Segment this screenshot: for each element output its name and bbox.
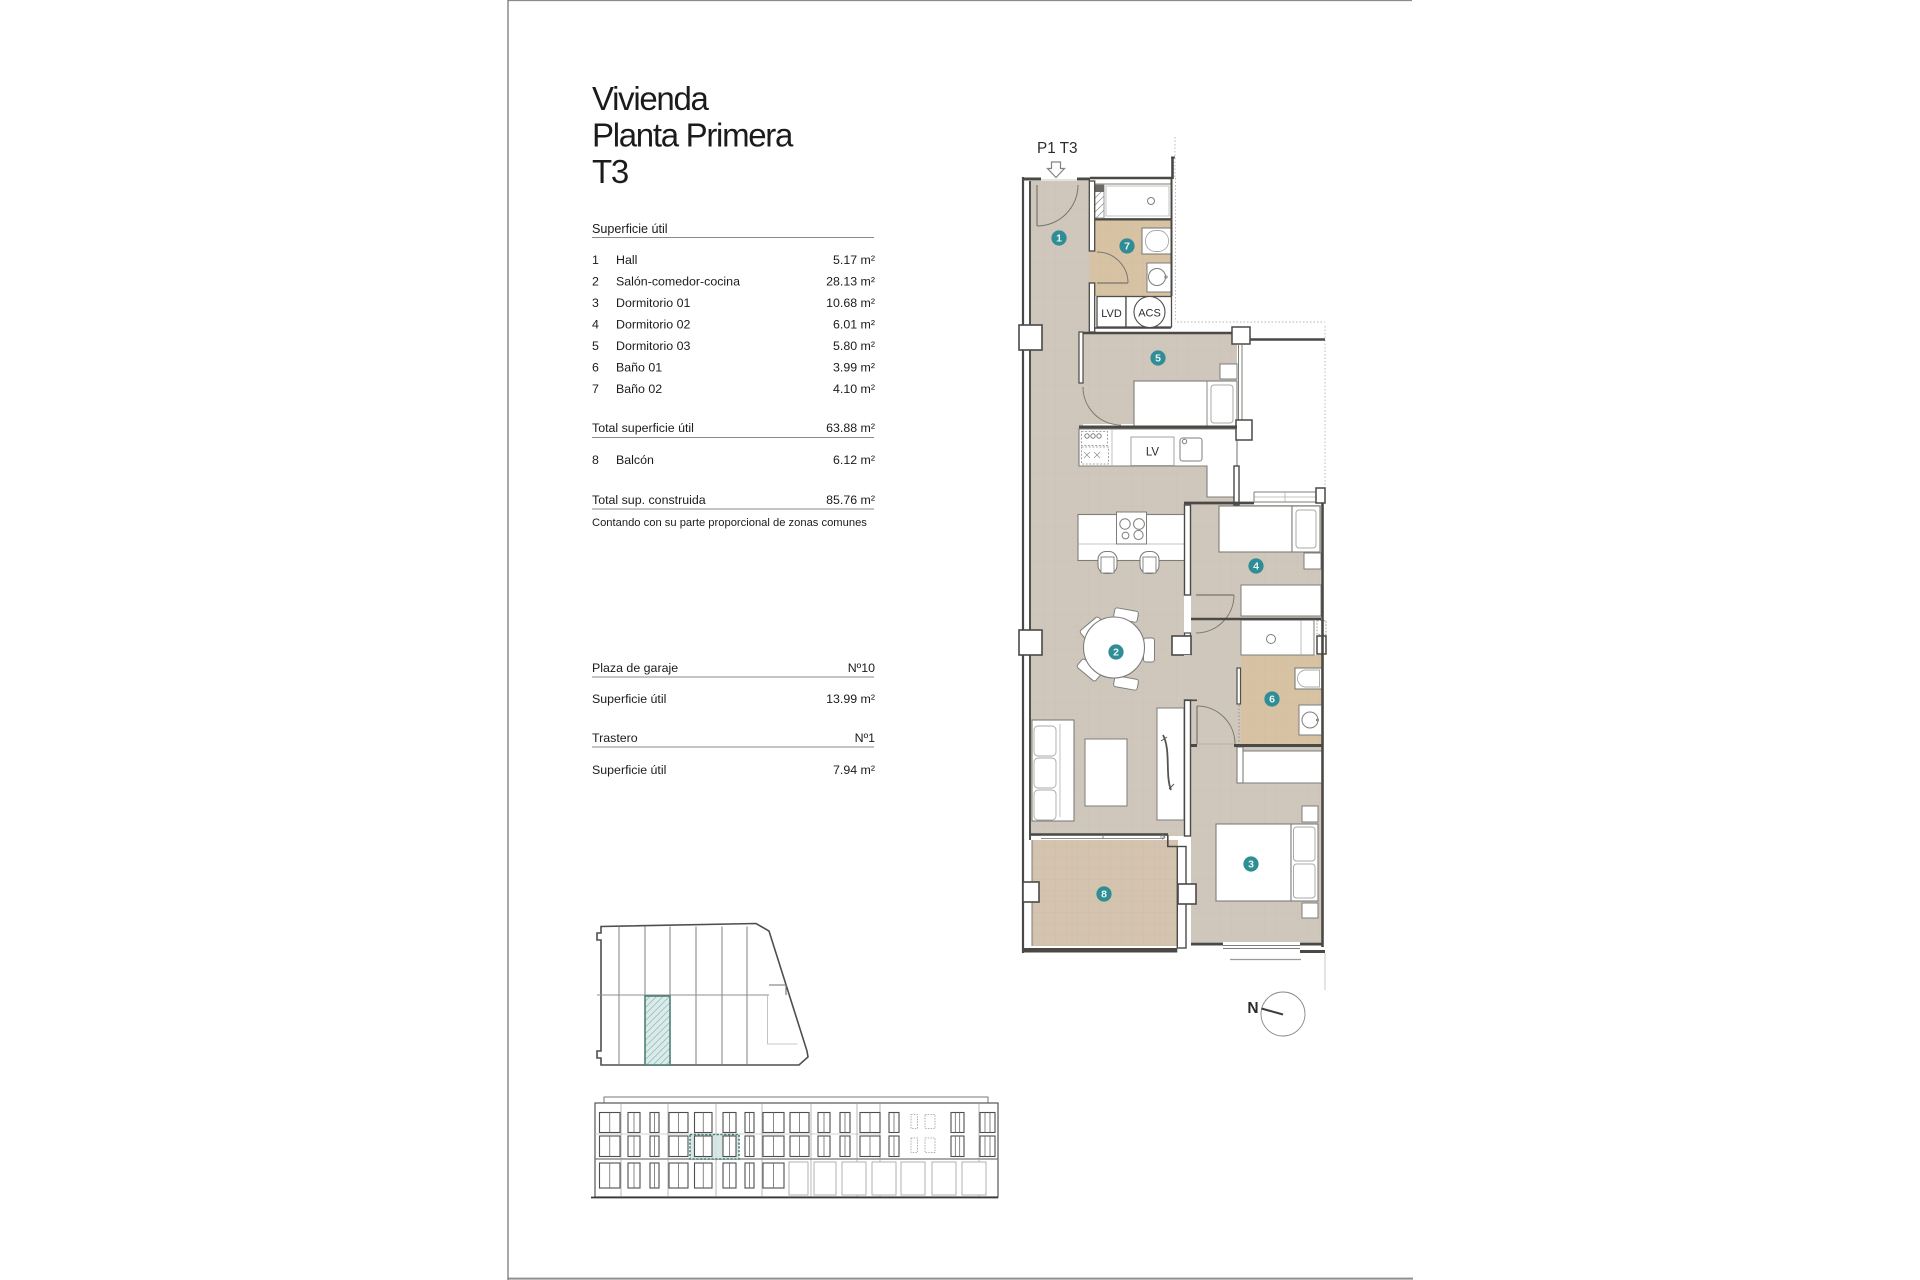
svg-text:Nº1: Nº1 (855, 731, 875, 745)
svg-text:LV: LV (1146, 447, 1160, 459)
svg-text:Superficie útil: Superficie útil (592, 222, 668, 236)
svg-text:1: 1 (592, 253, 599, 267)
svg-text:Baño 02: Baño 02 (616, 382, 662, 396)
svg-text:4: 4 (592, 318, 599, 332)
svg-text:13.99 m²: 13.99 m² (826, 692, 875, 706)
svg-text:Total superficie útil: Total superficie útil (592, 421, 694, 435)
svg-text:3: 3 (1248, 859, 1254, 871)
svg-text:LVD: LVD (1101, 308, 1122, 320)
svg-text:8: 8 (592, 453, 599, 467)
svg-text:1: 1 (1056, 233, 1062, 245)
svg-text:5.80 m²: 5.80 m² (833, 339, 875, 353)
svg-text:Dormitorio 03: Dormitorio 03 (616, 339, 690, 353)
svg-text:T3: T3 (592, 153, 628, 190)
svg-text:6: 6 (1269, 694, 1275, 706)
svg-text:Superficie útil: Superficie útil (592, 763, 666, 777)
svg-text:7: 7 (1124, 241, 1130, 253)
svg-text:Trastero: Trastero (592, 731, 638, 745)
svg-text:6.12 m²: 6.12 m² (833, 453, 875, 467)
svg-text:8: 8 (1101, 889, 1107, 901)
svg-text:28.13 m²: 28.13 m² (826, 275, 875, 289)
svg-text:Hall: Hall (616, 253, 637, 267)
svg-text:Nº10: Nº10 (848, 661, 875, 675)
svg-text:Contando con su parte proporci: Contando con su parte proporcional de zo… (592, 517, 867, 529)
svg-text:2: 2 (592, 275, 599, 289)
svg-text:10.68 m²: 10.68 m² (826, 296, 875, 310)
svg-text:4.10 m²: 4.10 m² (833, 382, 875, 396)
svg-text:Dormitorio 02: Dormitorio 02 (616, 318, 690, 332)
svg-text:Total sup. construida: Total sup. construida (592, 493, 706, 507)
svg-text:ACS: ACS (1138, 308, 1161, 320)
svg-text:5: 5 (1155, 353, 1161, 365)
svg-text:6.01 m²: 6.01 m² (833, 318, 875, 332)
svg-text:Dormitorio 01: Dormitorio 01 (616, 296, 690, 310)
svg-text:7: 7 (592, 382, 599, 396)
svg-text:4: 4 (1253, 561, 1259, 573)
svg-text:5: 5 (592, 339, 599, 353)
svg-text:Superficie útil: Superficie útil (592, 692, 666, 706)
svg-text:6: 6 (592, 361, 599, 375)
svg-text:Vivienda: Vivienda (592, 80, 710, 117)
svg-text:Balcón: Balcón (616, 453, 654, 467)
svg-text:P1 T3: P1 T3 (1037, 140, 1078, 157)
svg-text:85.76 m²: 85.76 m² (826, 493, 875, 507)
svg-text:5.17 m²: 5.17 m² (833, 253, 875, 267)
svg-text:7.94 m²: 7.94 m² (833, 763, 875, 777)
svg-text:2: 2 (1113, 647, 1119, 659)
svg-text:N: N (1247, 1000, 1258, 1017)
svg-text:Baño 01: Baño 01 (616, 361, 662, 375)
svg-text:3: 3 (592, 296, 599, 310)
svg-text:Planta Primera: Planta Primera (592, 117, 794, 154)
svg-text:63.88 m²: 63.88 m² (826, 421, 875, 435)
svg-text:3.99 m²: 3.99 m² (833, 361, 875, 375)
svg-text:Salón-comedor-cocina: Salón-comedor-cocina (616, 275, 740, 289)
svg-text:Plaza de garaje: Plaza de garaje (592, 661, 678, 675)
